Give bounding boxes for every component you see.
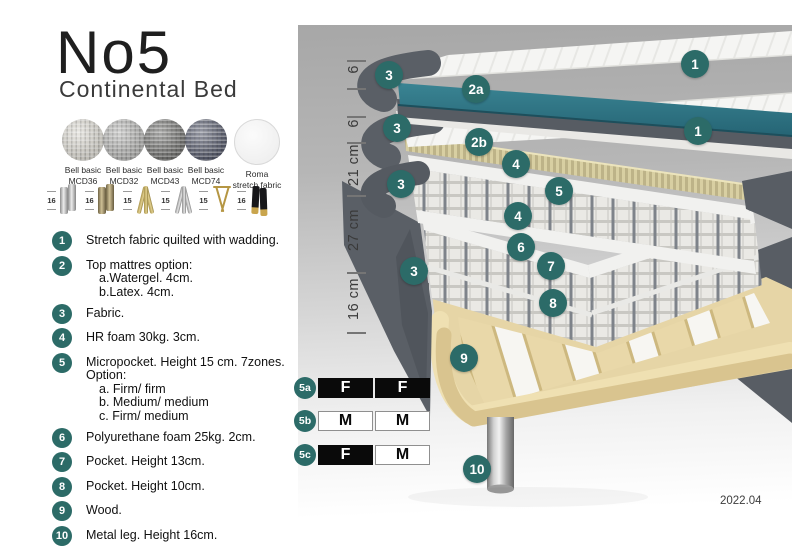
- feature-number-badge: 10: [52, 526, 72, 546]
- leg-option: 16: [47, 183, 85, 217]
- marker-stretch-mid-1: 1: [684, 117, 712, 145]
- marker-pocket13-7: 7: [537, 252, 565, 280]
- feature-number-badge: 5: [52, 353, 72, 373]
- feature-number-badge: 7: [52, 452, 72, 472]
- feature-item-5: 5 Micropocket. Height 15 cm. 7zones. Opt…: [52, 353, 298, 424]
- firmness-cell: M: [318, 411, 373, 431]
- leg-height: 15: [199, 191, 208, 210]
- firmness-cell: M: [375, 411, 430, 431]
- feature-item-1: 1 Stretch fabric quilted with wadding.: [52, 231, 298, 251]
- firmness-cell: F: [375, 378, 430, 398]
- ruler-tick: [347, 116, 366, 118]
- feature-item-3: 3 Fabric.: [52, 304, 298, 324]
- firmness-cell: M: [375, 445, 430, 465]
- firmness-cell: F: [318, 445, 373, 465]
- feature-number-badge: 3: [52, 304, 72, 324]
- firmness-cell: F: [318, 378, 373, 398]
- leg-options-row: 16 16 15 15 15: [47, 183, 275, 217]
- feature-text: Wood.: [86, 501, 122, 518]
- version-label: 2022.04: [720, 495, 762, 507]
- leg-hairpin-gold-icon: [210, 183, 236, 217]
- fabric-swatch-row: Bell basicMCD36 Bell basicMCD32 Bell bas…: [54, 119, 286, 191]
- fabric-name: Bell basic: [188, 165, 224, 175]
- marker-pocket10-8: 8: [539, 289, 567, 317]
- leg-option: 15: [199, 183, 237, 217]
- leg-option: 15: [161, 183, 199, 217]
- leg-twisted-gold-icon: [134, 183, 160, 217]
- dimension-label: 6: [346, 65, 362, 74]
- feature-sub-option: c. Firm/ medium: [99, 410, 298, 424]
- feature-number-badge: 4: [52, 328, 72, 348]
- fabric-swatch-image: [234, 119, 280, 165]
- marker-watergel-2a: 2a: [462, 75, 490, 103]
- feature-sub-option: b.Latex. 4cm.: [99, 286, 193, 300]
- ruler-tick: [347, 60, 366, 62]
- dimension-label: 27 cm: [346, 209, 362, 251]
- marker-pufoam-6: 6: [507, 233, 535, 261]
- marker-latex-2b: 2b: [465, 128, 493, 156]
- feature-item-4: 4 HR foam 30kg. 3cm.: [52, 328, 298, 348]
- fabric-swatch-image: [185, 119, 227, 161]
- feature-text: Polyurethane foam 25kg. 2cm.: [86, 428, 256, 445]
- marker-fabric-mid-upper: 3: [383, 114, 411, 142]
- ruler-tick: [347, 195, 366, 197]
- feature-item-7: 7 Pocket. Height 13cm.: [52, 452, 298, 472]
- firmness-row-5a: 5a F F: [318, 378, 430, 398]
- leg-height: 15: [123, 191, 132, 210]
- feature-text: Pocket. Height 10cm.: [86, 477, 205, 494]
- leg-twisted-silver-icon: [172, 183, 198, 217]
- feature-text: Top mattres option: a.Watergel. 4cm. b.L…: [86, 256, 193, 300]
- firmness-row-label: 5c: [294, 444, 316, 466]
- feature-item-6: 6 Polyurethane foam 25kg. 2cm.: [52, 428, 298, 448]
- marker-wood-9: 9: [450, 344, 478, 372]
- info-column: No5 Continental Bed Bell basicMCD36 Bell…: [0, 0, 298, 533]
- feature-text-main: Micropocket. Height 15 cm. 7zones. Optio…: [86, 356, 298, 383]
- leg-height: 16: [237, 191, 246, 210]
- page-subtitle: Continental Bed: [59, 76, 238, 103]
- leg-height: 16: [85, 191, 94, 210]
- marker-fabric-top: 3: [375, 61, 403, 89]
- marker-fabric-mid-lower: 3: [387, 170, 415, 198]
- marker-hrfoam-upper-4: 4: [502, 150, 530, 178]
- feature-text: Fabric.: [86, 304, 124, 321]
- dimension-label: 6: [346, 119, 362, 128]
- leg-cylinder-bronze-icon: [96, 183, 122, 217]
- leg-option: 16: [237, 183, 275, 217]
- leg-cylinder-silver-icon: [58, 183, 84, 217]
- ruler-tick: [347, 332, 366, 334]
- marker-hrfoam-lower-4: 4: [504, 202, 532, 230]
- marker-fabric-low: 3: [400, 257, 428, 285]
- marker-stretch-top-1: 1: [681, 50, 709, 78]
- fabric-name: Roma: [246, 169, 269, 179]
- dimension-label: 21 cm: [346, 144, 362, 186]
- feature-sub-option: a.Watergel. 4cm.: [99, 272, 193, 286]
- firmness-row-5b: 5b M M: [318, 411, 430, 431]
- feature-text: Pocket. Height 13cm.: [86, 452, 205, 469]
- firmness-row-label: 5a: [294, 377, 316, 399]
- ruler-tick: [347, 88, 366, 90]
- feature-text: Stretch fabric quilted with wadding.: [86, 231, 279, 248]
- firmness-row-label: 5b: [294, 410, 316, 432]
- fabric-swatch: Romastretch fabric: [228, 119, 286, 191]
- page: { "product": { "title": "No5", "subtitle…: [0, 0, 800, 533]
- feature-list: 1 Stretch fabric quilted with wadding. 2…: [52, 231, 298, 550]
- feature-number-badge: 6: [52, 428, 72, 448]
- feature-item-2: 2 Top mattres option: a.Watergel. 4cm. b…: [52, 256, 298, 300]
- feature-item-10: 10 Metal leg. Height 16cm.: [52, 526, 298, 546]
- dimension-label: 16 cm: [346, 278, 362, 320]
- feature-number-badge: 9: [52, 501, 72, 521]
- feature-text: Micropocket. Height 15 cm. 7zones. Optio…: [86, 353, 298, 424]
- fabric-swatch: Bell basicMCD74: [177, 119, 235, 187]
- leg-height: 16: [47, 191, 56, 210]
- marker-micropocket-5: 5: [545, 177, 573, 205]
- feature-sub-option: b. Medium/ medium: [99, 396, 298, 410]
- bed-diagram-panel: 6 6 21 cm 27 cm 16 cm 3 2a 1 1 3 2b 4 5 …: [298, 25, 792, 533]
- feature-number-badge: 1: [52, 231, 72, 251]
- feature-item-9: 9 Wood.: [52, 501, 298, 521]
- leg-height: 15: [161, 191, 170, 210]
- feature-number-badge: 8: [52, 477, 72, 497]
- marker-metal-leg-10: 10: [463, 455, 491, 483]
- feature-number-badge: 2: [52, 256, 72, 276]
- feature-text: HR foam 30kg. 3cm.: [86, 328, 200, 345]
- feature-sub-option: a. Firm/ firm: [99, 383, 298, 397]
- leg-block-black-icon: [248, 183, 274, 217]
- feature-item-8: 8 Pocket. Height 10cm.: [52, 477, 298, 497]
- feature-text-main: Top mattres option:: [86, 259, 193, 273]
- firmness-row-5c: 5c F M: [318, 445, 430, 465]
- feature-text: Metal leg. Height 16cm.: [86, 526, 217, 543]
- leg-option: 16: [85, 183, 123, 217]
- ruler-tick: [347, 272, 366, 274]
- leg-option: 15: [123, 183, 161, 217]
